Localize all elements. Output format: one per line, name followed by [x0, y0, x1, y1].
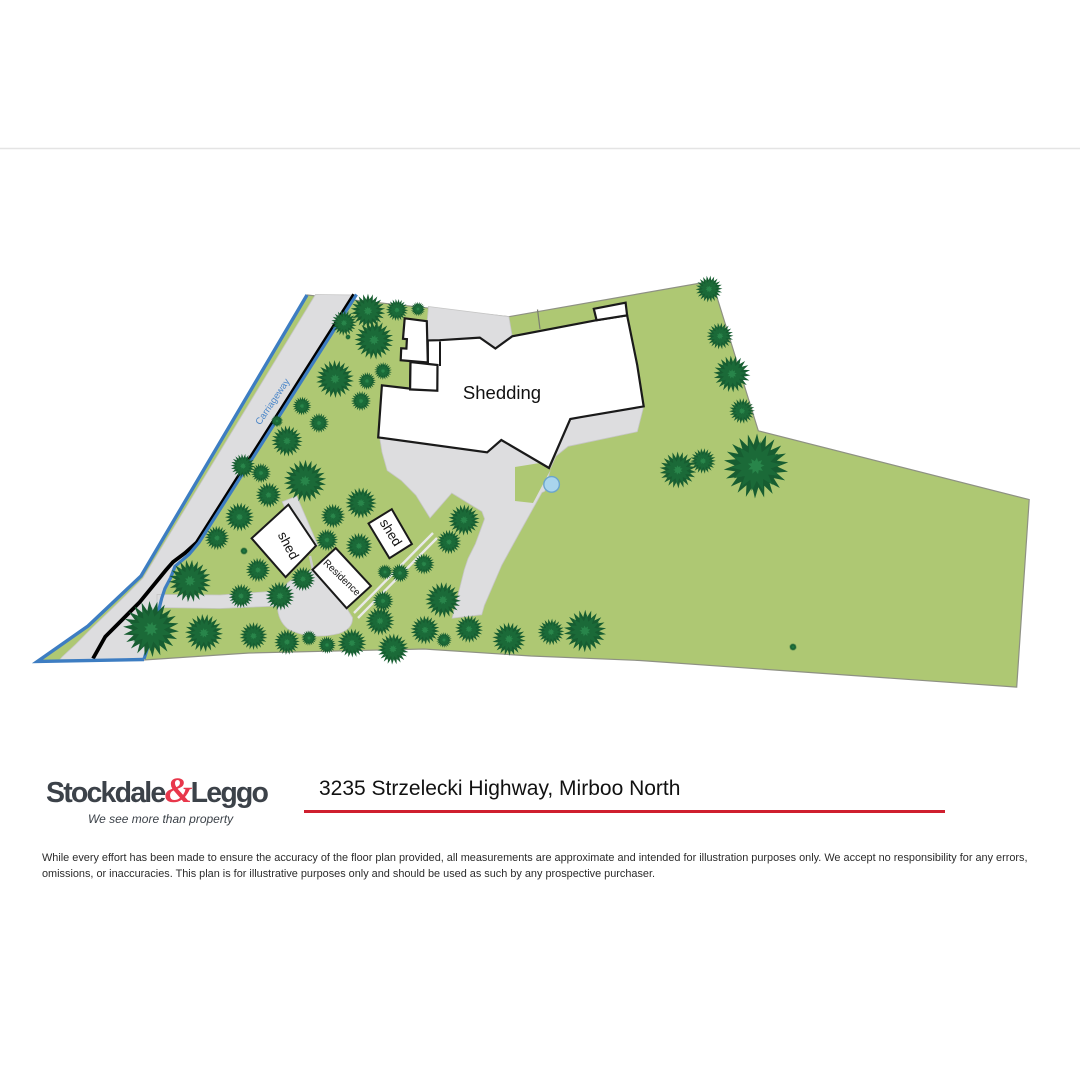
svg-text:Shedding: Shedding — [463, 382, 541, 403]
